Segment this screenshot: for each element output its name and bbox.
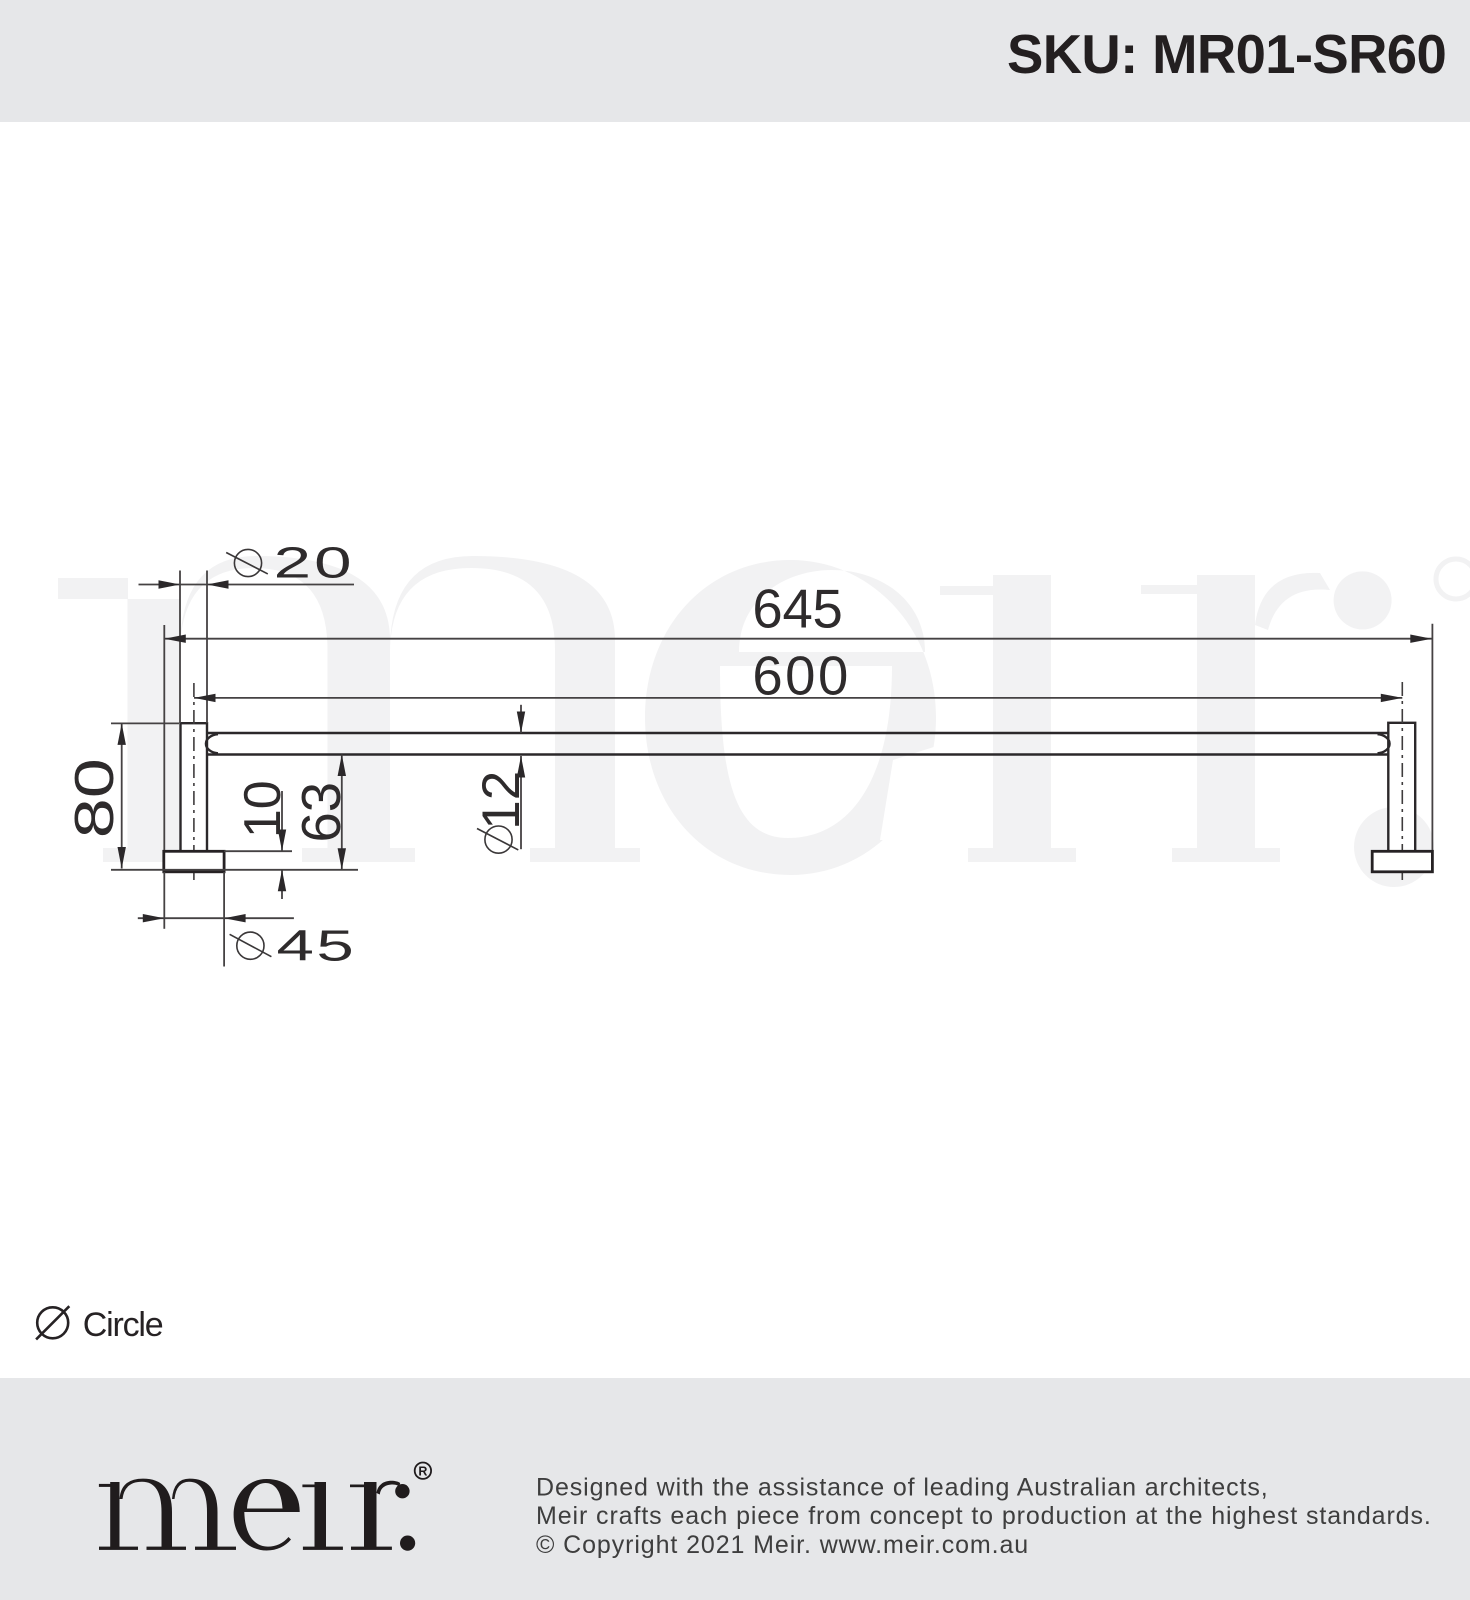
svg-text:12: 12 [472, 771, 531, 830]
svg-text:10: 10 [234, 780, 292, 838]
svg-text:645: 645 [752, 579, 843, 640]
svg-text:80: 80 [63, 758, 125, 838]
svg-text:600: 600 [752, 645, 848, 706]
svg-text:Circle: Circle [83, 1306, 163, 1344]
svg-text:Designed with the assistance o: Designed with the assistance of leading … [536, 1474, 1269, 1502]
svg-text:Meir crafts each piece from co: Meir crafts each piece from concept to p… [536, 1502, 1432, 1530]
svg-text:45: 45 [277, 922, 354, 971]
svg-text:© Copyright 2021 Meir. www.mei: © Copyright 2021 Meir. www.meir.com.au [536, 1531, 1029, 1559]
svg-text:63: 63 [291, 782, 352, 843]
